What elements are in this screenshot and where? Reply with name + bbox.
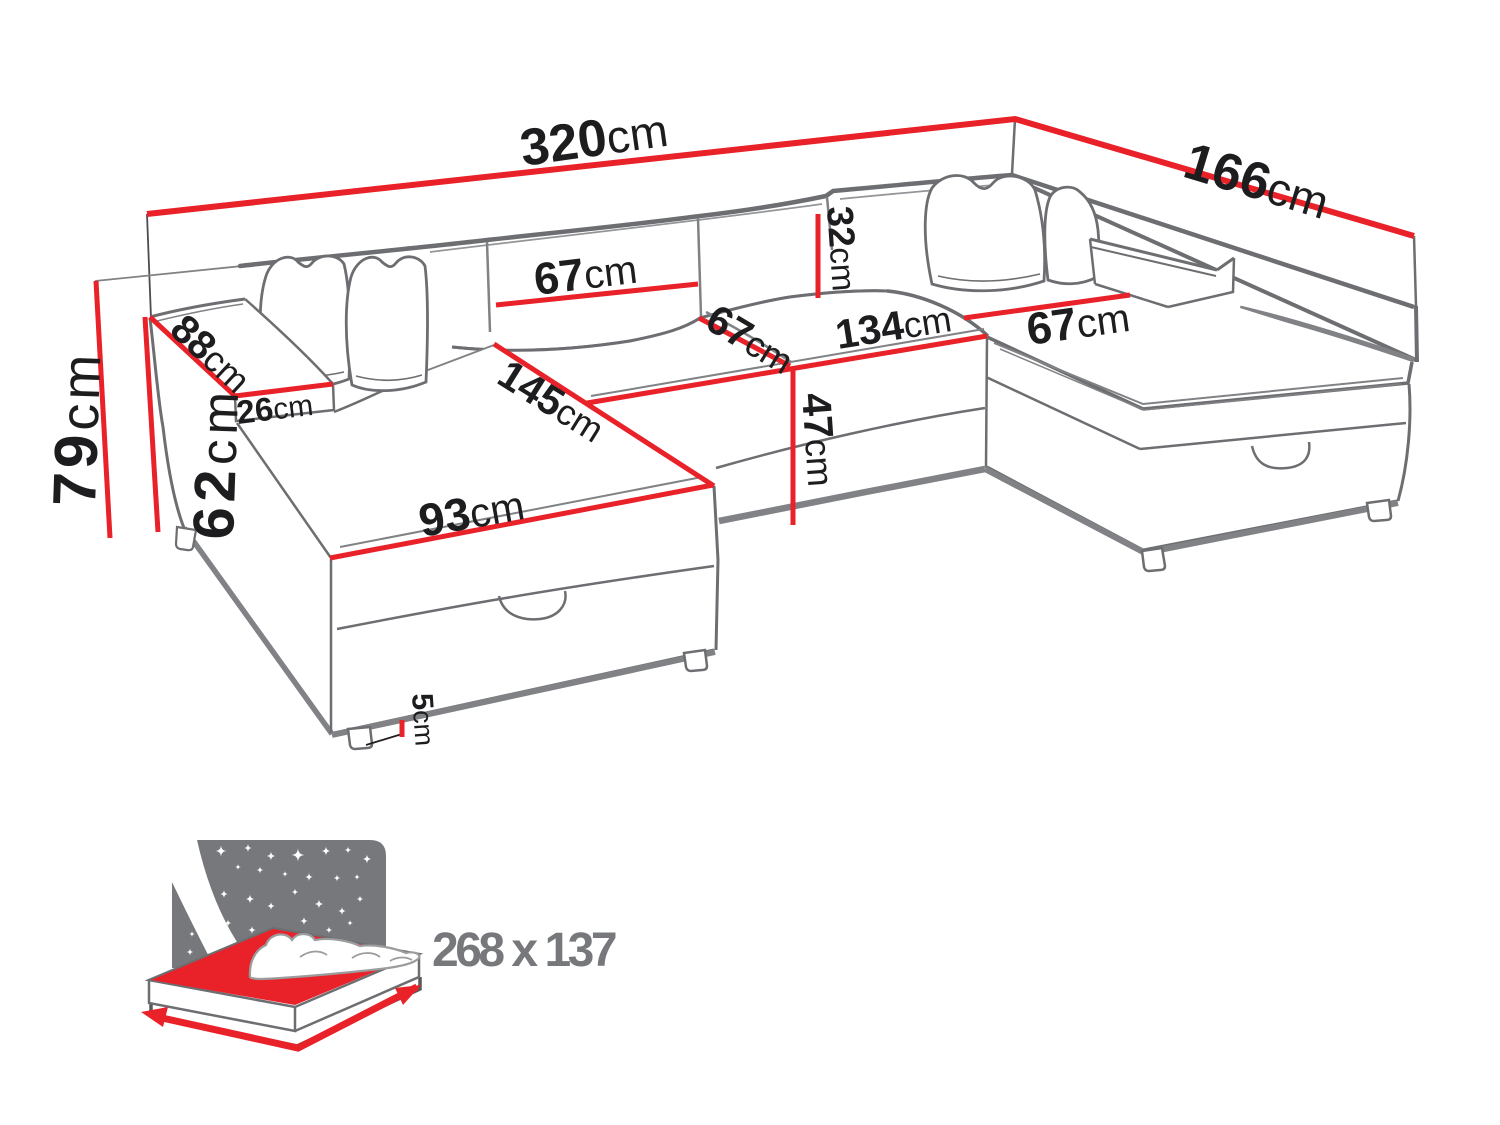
- svg-text:47cm: 47cm: [793, 391, 845, 488]
- svg-text:5cm: 5cm: [405, 692, 442, 747]
- svg-text:79cm: 79cm: [40, 349, 113, 507]
- svg-text:32cm: 32cm: [819, 205, 866, 293]
- svg-text:62cm: 62cm: [181, 386, 251, 541]
- svg-text:268 x 137: 268 x 137: [432, 924, 616, 977]
